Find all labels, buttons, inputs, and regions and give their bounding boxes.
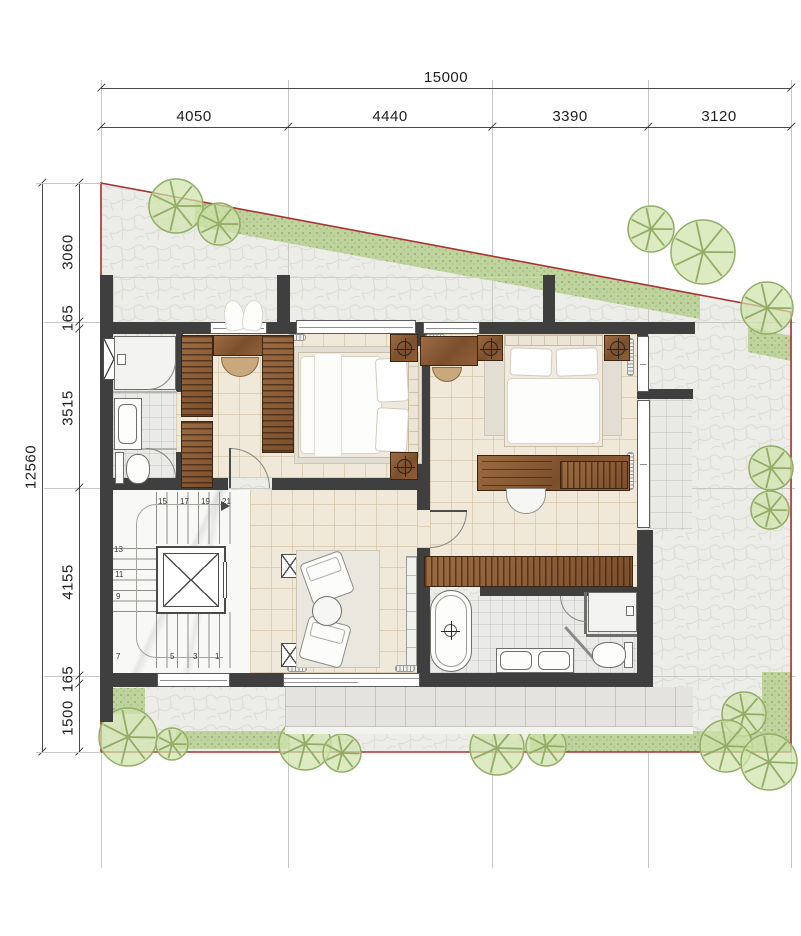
- window-stair-south: [157, 673, 230, 687]
- toilet-1-tank: [115, 452, 124, 484]
- lamp-icon: [397, 341, 412, 356]
- building-layer: 15 17 19 21 13 11 9 7 5 3 1: [0, 0, 801, 936]
- stair-number: 21: [222, 497, 231, 506]
- closet-upper-cabinet: [213, 335, 263, 356]
- terrace-nook-tiles: [650, 399, 692, 529]
- stair-number: 3: [193, 652, 197, 661]
- stair-number: 17: [180, 497, 189, 506]
- window-bedroom2-north: [423, 322, 480, 334]
- pass-through-wardrobe: [424, 556, 633, 587]
- bed-1-throw: [314, 354, 342, 456]
- pillow: [375, 357, 409, 403]
- wardrobe: [181, 335, 213, 417]
- balcony-kerb: [285, 727, 693, 734]
- window-east-lower: [637, 400, 650, 528]
- shower-head-icon: [626, 606, 634, 616]
- bed-2-headboard: [504, 335, 603, 346]
- curtain-icon: [395, 665, 415, 672]
- desk-wardrobe-section: [560, 461, 628, 489]
- balcony-floor: [285, 687, 693, 727]
- elevator-shaft-icon: [163, 553, 219, 607]
- lamp-icon: [610, 341, 625, 356]
- stair-number: 1: [215, 652, 219, 661]
- dresser: [420, 336, 478, 366]
- wardrobe: [262, 335, 294, 453]
- stair-number: 9: [116, 592, 120, 601]
- wardrobe: [181, 421, 213, 488]
- floor-plan: 15 17 19 21 13 11 9 7 5 3 1 15000 4050 4…: [0, 0, 801, 936]
- canopy-outline: [113, 277, 545, 324]
- shower-head-icon: [117, 354, 126, 365]
- door-leaf: [229, 448, 231, 488]
- wall-east-lower: [637, 530, 653, 687]
- door-leaf: [430, 510, 467, 512]
- media-console: [406, 556, 417, 666]
- window-bedroom1-north: [296, 320, 416, 334]
- stair-number: 13: [114, 545, 123, 554]
- sink-basin: [500, 651, 532, 670]
- sink-basin: [538, 651, 570, 670]
- pillow: [510, 347, 553, 376]
- stair-number: 5: [170, 652, 174, 661]
- wall-stub-b: [543, 275, 555, 322]
- bed-1-headboard: [408, 352, 419, 458]
- toilet-2-bowl: [592, 642, 626, 668]
- door-opening-floor: [417, 510, 430, 548]
- desk-drawers: [482, 460, 552, 486]
- wall-stub-a: [277, 275, 290, 322]
- sliding-door-south: [283, 673, 420, 687]
- stair-number: 19: [201, 497, 210, 506]
- window-east-upper: [637, 336, 649, 392]
- pillow: [375, 407, 409, 453]
- coffee-table: [312, 596, 342, 626]
- sink-1-basin: [118, 404, 137, 444]
- pillow: [556, 347, 599, 376]
- bath1-divider-line: [113, 391, 177, 393]
- lamp-icon: [397, 459, 412, 474]
- lamp-icon: [483, 341, 498, 356]
- stair-number: 11: [115, 570, 123, 579]
- stair-number: 15: [158, 497, 167, 506]
- stair-number: 7: [116, 652, 120, 661]
- bath2-partition: [586, 634, 637, 637]
- elevator-door: [223, 562, 227, 598]
- bed-2-duvet: [507, 378, 600, 444]
- bathtub-drain-icon: [444, 624, 457, 637]
